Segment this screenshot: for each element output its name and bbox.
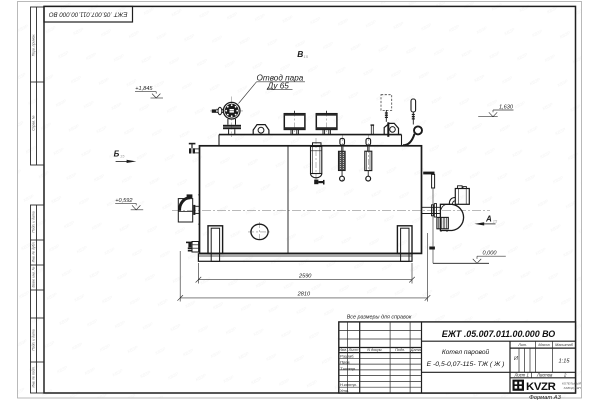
svg-text:Подп.: Подп.: [395, 348, 405, 352]
svg-text:2590: 2590: [298, 273, 312, 279]
svg-text:КОТЕЛЬНЫЙ: КОТЕЛЬНЫЙ: [562, 382, 582, 386]
svg-text:Лист: Лист: [348, 348, 359, 352]
svg-text:Листов: Листов: [536, 373, 553, 378]
svg-text:Подп. и дата: Подп. и дата: [31, 329, 35, 350]
svg-text:Е -0,5-0,07-115- ТЖ ( Ж ): Е -0,5-0,07-115- ТЖ ( Ж ): [427, 361, 505, 368]
svg-text:Инв. № подл.: Инв. № подл.: [31, 366, 35, 387]
svg-text:15: 15: [493, 219, 498, 224]
svg-text:Н.контр.: Н.контр.: [340, 382, 357, 387]
svg-text:15: 15: [304, 54, 309, 59]
svg-text:Инв. № дубл.: Инв. № дубл.: [31, 242, 35, 263]
svg-text:KVZR: KVZR: [526, 381, 556, 393]
svg-text:Формат А3: Формат А3: [529, 395, 561, 400]
svg-text:Справ. №: Справ. №: [31, 115, 35, 131]
svg-text:ЕЖТ .05.007.011.00.000 ВО: ЕЖТ .05.007.011.00.000 ВО: [49, 11, 128, 18]
svg-text:Лит.: Лит.: [517, 343, 527, 347]
svg-text:Дата: Дата: [410, 348, 421, 352]
svg-text:ЗАВОД РЭП: ЗАВОД РЭП: [564, 386, 582, 390]
svg-text:Б: Б: [114, 149, 120, 158]
svg-text:В: В: [297, 49, 303, 59]
svg-text:Подп. и дата: Подп. и дата: [31, 211, 35, 232]
svg-text:А: А: [485, 214, 492, 223]
svg-text:ЕЖТ .05.007.011.00.000 ВО: ЕЖТ .05.007.011.00.000 ВО: [442, 329, 556, 339]
svg-text:N докум.: N докум.: [367, 348, 382, 352]
svg-text:Изм.: Изм.: [339, 348, 347, 352]
svg-text:Утв.: Утв.: [340, 388, 349, 393]
svg-text:Разраб.: Разраб.: [340, 354, 354, 359]
svg-text:Перв. примен.: Перв. примен.: [31, 34, 35, 57]
svg-text:Масштаб: Масштаб: [555, 343, 574, 347]
svg-text:Взам. инв. №: Взам. инв. №: [31, 266, 35, 287]
svg-text:2810: 2810: [297, 292, 311, 298]
svg-text:+1,845: +1,845: [135, 86, 153, 92]
svg-text:0,000: 0,000: [483, 251, 498, 257]
svg-text:Все размеры для справок: Все размеры для справок: [347, 315, 412, 321]
svg-text:Лист: Лист: [514, 373, 526, 378]
svg-text:15: 15: [120, 154, 125, 159]
svg-text:1:15: 1:15: [559, 359, 571, 365]
svg-text:1: 1: [527, 373, 529, 378]
svg-text:+0,592: +0,592: [115, 198, 133, 204]
svg-text:1,630: 1,630: [499, 104, 514, 110]
svg-text:Пров.: Пров.: [340, 359, 351, 364]
svg-text:Т.контр.: Т.контр.: [340, 366, 356, 371]
svg-text:Котел паровой: Котел паровой: [442, 348, 490, 356]
svg-text:Ду 65: Ду 65: [267, 81, 290, 90]
svg-text:И: И: [514, 356, 518, 362]
svg-text:Масса: Масса: [538, 343, 549, 347]
